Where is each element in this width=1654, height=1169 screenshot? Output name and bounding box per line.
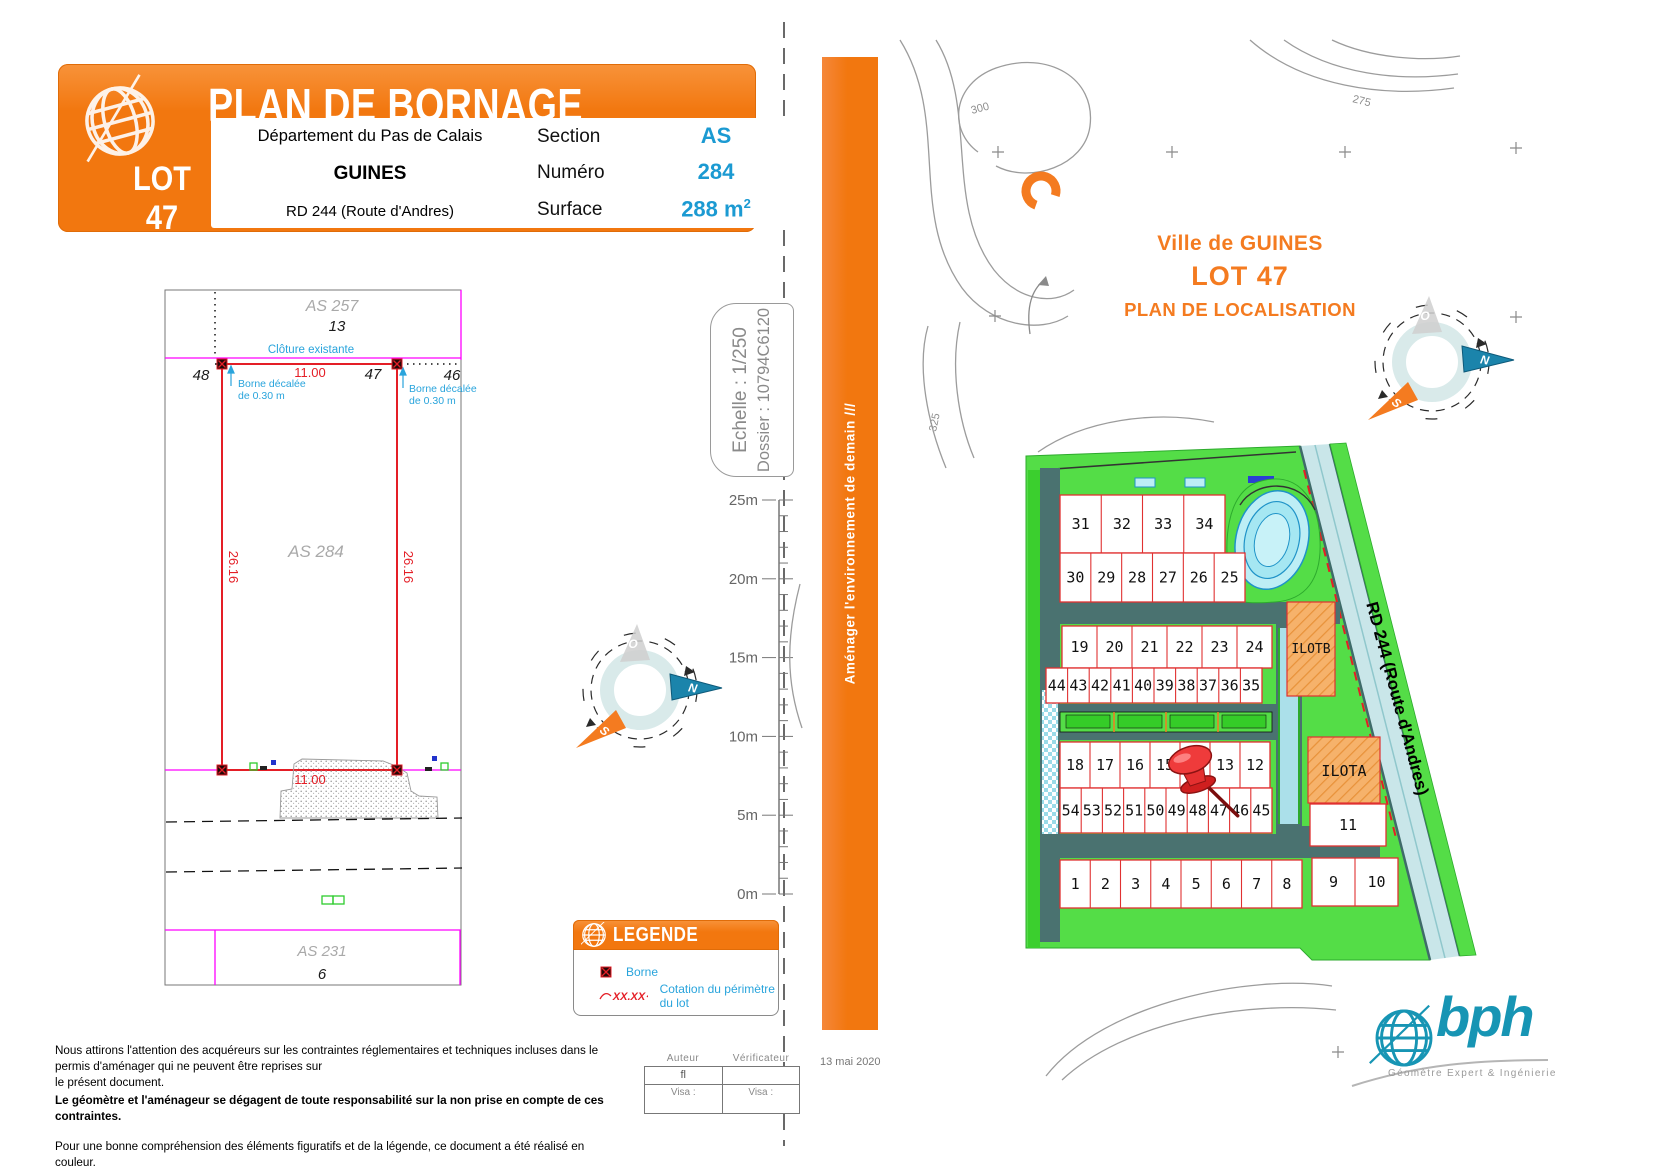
field-surface-value: 288 m2	[641, 196, 791, 222]
logo-name: bph	[1436, 984, 1533, 1049]
map-lot-number: 53	[1083, 802, 1101, 820]
title-block: PLAN DE BORNAGE LOT 47 Département du Pa…	[58, 64, 756, 232]
map-lot-number: 26	[1190, 569, 1208, 587]
verifier-header: Vérificateur	[722, 1053, 800, 1064]
map-lot-number: 11	[1339, 816, 1357, 834]
map-lot-row: 11	[1310, 804, 1386, 846]
map-lot-number: 23	[1210, 638, 1228, 656]
date-label: 13 mai 2020	[820, 1056, 881, 1068]
contour-label-300: 300	[970, 101, 991, 117]
map-lot-number: 3	[1131, 875, 1140, 893]
contour-label-275: 275	[1351, 93, 1372, 109]
title-panel: Département du Pas de Calais GUINES RD 2…	[211, 118, 805, 228]
map-lot-number: 35	[1242, 677, 1260, 695]
borne-marker	[392, 359, 402, 369]
map-lot-number: 52	[1104, 802, 1122, 820]
map-lot-number: 36	[1221, 677, 1239, 695]
map-lot-number: 13	[1216, 756, 1234, 774]
field-section-value: AS	[641, 123, 791, 149]
map-lot-number: 20	[1105, 638, 1123, 656]
map-lot-number: 6	[1222, 875, 1231, 893]
disclaimer-line-3: Le géomètre et l'aménageur se dégagent d…	[55, 1093, 625, 1125]
point-47: 47	[365, 366, 382, 383]
gravel-area	[280, 759, 438, 818]
map-lot-number: 9	[1329, 873, 1338, 891]
point-48: 48	[193, 367, 210, 384]
map-lot-row: 12345678	[1060, 860, 1302, 908]
dim-bottom: 11.00	[294, 772, 326, 787]
map-lot-number: 43	[1069, 677, 1087, 695]
map-lot-number: 17	[1096, 756, 1114, 774]
north-compass-left: N O S	[576, 624, 722, 748]
visa-right: Visa :	[723, 1085, 800, 1113]
scale-value: Echelle : 1/250	[730, 308, 752, 472]
offset-note-left-1: Borne décalée	[238, 378, 306, 390]
visa-left: Visa :	[645, 1085, 723, 1113]
map-lot-number: 5	[1192, 875, 1201, 893]
map-lot-number: 51	[1125, 802, 1143, 820]
map-lot-row: 181716151312	[1060, 742, 1270, 788]
map-lot-number: 39	[1156, 677, 1174, 695]
road-label: RD 244 (Route d'Andres)	[229, 203, 511, 220]
map-lot-row: 44434241403938373635	[1046, 668, 1262, 703]
ruler-label: 10m	[729, 728, 758, 745]
map-lot-number: 30	[1066, 569, 1084, 587]
map-lot-number: 7	[1252, 875, 1261, 893]
ilot-b-label: ILOTB	[1291, 642, 1330, 657]
roundabout-icon	[1022, 172, 1060, 210]
company-logo: bph Géomètre Expert & Ingénierie	[1352, 996, 1582, 1092]
field-section-label: Section	[537, 126, 600, 148]
legend-borne-label: Borne	[626, 965, 658, 979]
map-lot-number: 25	[1221, 569, 1239, 587]
map-lot-row: 302928272625	[1060, 553, 1245, 602]
map-lot-number: 10	[1367, 873, 1385, 891]
fence-label: Clôture existante	[268, 344, 354, 356]
offset-note-right-2: de 0.30 m	[409, 395, 456, 407]
map-lot-number: 27	[1159, 569, 1177, 587]
parcel-number: 13	[329, 318, 346, 335]
map-lot-number: 16	[1126, 756, 1144, 774]
departement-label: Département du Pas de Calais	[229, 127, 511, 146]
author-header: Auteur	[644, 1053, 722, 1064]
field-surface-label: Surface	[537, 199, 602, 221]
logo-tagline: Géomètre Expert & Ingénierie	[1388, 1068, 1557, 1079]
map-lot-row: 192021222324	[1062, 626, 1272, 668]
slogan-banner: Aménager l'environnement de demain ///	[822, 57, 878, 1030]
ruler-label: 20m	[729, 571, 758, 588]
legend-title: LEGENDE	[613, 924, 698, 947]
plan-localisation-label: PLAN DE LOCALISATION	[1090, 299, 1390, 321]
contour-label-325: 325	[927, 412, 943, 432]
document-page: AS 257 13 Clôture existante 11.00 48 47 …	[0, 0, 1654, 1169]
site-plan: 3132333430292827262519202122232444434241…	[1026, 443, 1476, 960]
parcel-label: AS 257	[305, 298, 360, 315]
author-initials: fl	[645, 1067, 723, 1084]
dim-right: 26.16	[401, 551, 416, 584]
map-lot-number: 29	[1097, 569, 1115, 587]
lot-boundary	[222, 364, 397, 770]
legend-cotation-label: Cotation du périmètre du lot	[660, 982, 778, 1010]
borne-marker	[217, 765, 227, 775]
ruler-label: 15m	[729, 650, 758, 667]
field-numero-value: 284	[641, 159, 791, 185]
map-lot-number: 42	[1091, 677, 1109, 695]
lot-label: LOT 47	[1090, 261, 1390, 292]
map-lot-row: 910	[1312, 858, 1398, 906]
road-edges	[166, 818, 462, 872]
map-lot-number: 31	[1072, 515, 1090, 533]
map-lot-number: 21	[1140, 638, 1158, 656]
ville-label: Ville de GUINES	[1090, 232, 1390, 256]
offset-note-right-1: Borne décalée	[409, 383, 477, 395]
localisation-title: Ville de GUINES LOT 47 PLAN DE LOCALISAT…	[1090, 232, 1390, 321]
slogan-text: Aménager l'environnement de demain ///	[843, 403, 858, 685]
map-lot-number: 8	[1282, 875, 1291, 893]
legend-header: LEGENDE	[573, 920, 779, 950]
offset-note-left-2: de 0.30 m	[238, 390, 285, 402]
map-lot-number: 45	[1252, 802, 1270, 820]
map-lot-number: 34	[1195, 515, 1213, 533]
map-lot-number: 1	[1071, 875, 1080, 893]
cotation-sample-text: XX.XX	[612, 991, 646, 1003]
borne-marker	[392, 765, 402, 775]
map-lot-number: 38	[1177, 677, 1195, 695]
map-lot-number: 2	[1101, 875, 1110, 893]
map-lot-number: 33	[1154, 515, 1172, 533]
map-lot-row: 54535251504948474645	[1060, 788, 1272, 833]
dim-left: 26.16	[226, 551, 241, 584]
access-arrow	[1029, 280, 1044, 334]
map-lot-number: 54	[1062, 802, 1080, 820]
ruler-label: 25m	[729, 492, 758, 509]
map-lot-number: 4	[1161, 875, 1170, 893]
dossier-value: Dossier : 10794C6120	[755, 308, 774, 472]
map-lot-number: 44	[1048, 677, 1066, 695]
disclaimer-line-2: le présent document.	[55, 1075, 625, 1091]
crossing-hatch	[1042, 690, 1058, 834]
access-arrow-head	[1038, 276, 1049, 286]
parcel-bottom-number: 6	[318, 966, 327, 983]
borne-legend-icon	[598, 964, 614, 980]
parcel-bottom-label: AS 231	[296, 943, 346, 960]
map-lot-number: 41	[1113, 677, 1131, 695]
map-lot-number: 50	[1146, 802, 1164, 820]
approval-table: Auteur Vérificateur fl Visa : Visa :	[644, 1053, 800, 1114]
map-lot-number: 12	[1246, 756, 1264, 774]
map-lot-number: 37	[1199, 677, 1217, 695]
map-lot-number: 24	[1245, 638, 1263, 656]
disclaimer-line-4: Pour une bonne compréhension des élément…	[55, 1139, 625, 1169]
disclaimer-text: Nous attirons l'attention des acquéreurs…	[55, 1043, 625, 1169]
compass-o-label: O	[1420, 309, 1430, 323]
map-lot-number: 18	[1066, 756, 1084, 774]
borne-marker	[217, 359, 227, 369]
point-46: 46	[444, 367, 461, 384]
cotation-sample-icon: XX.XX	[598, 988, 648, 1004]
map-lot-number: 19	[1070, 638, 1088, 656]
legend-body: Borne XX.XX Cotation du périmètre du lot	[573, 950, 779, 1016]
field-numero-label: Numéro	[537, 162, 605, 184]
ruler-label: 5m	[737, 807, 758, 824]
map-lot-number: 40	[1134, 677, 1152, 695]
map-lot-number: 48	[1189, 802, 1207, 820]
map-lot-row: 31323334	[1060, 495, 1225, 553]
map-lot-number: 28	[1128, 569, 1146, 587]
ilot-a-label: ILOTA	[1321, 762, 1366, 780]
globe-icon	[581, 922, 607, 948]
disclaimer-line-1: Nous attirons l'attention des acquéreurs…	[55, 1043, 625, 1075]
map-lot-number: 22	[1175, 638, 1193, 656]
ruler-label: 0m	[737, 886, 758, 903]
scale-dossier-box: Echelle : 1/250 Dossier : 10794C6120	[710, 303, 794, 477]
survey-drawing: AS 257 13 Clôture existante 11.00 48 47 …	[165, 290, 477, 985]
map-lot-number: 49	[1168, 802, 1186, 820]
legend-box: LEGENDE Borne XX.XX Cotation du périmètr…	[573, 920, 779, 1016]
compass-o-label: O	[628, 637, 638, 651]
commune-label: GUINES	[229, 163, 511, 185]
map-lot-number: 32	[1113, 515, 1131, 533]
parcel-main-label: AS 284	[287, 542, 344, 561]
lot-number-badge: LOT 47	[118, 160, 206, 238]
